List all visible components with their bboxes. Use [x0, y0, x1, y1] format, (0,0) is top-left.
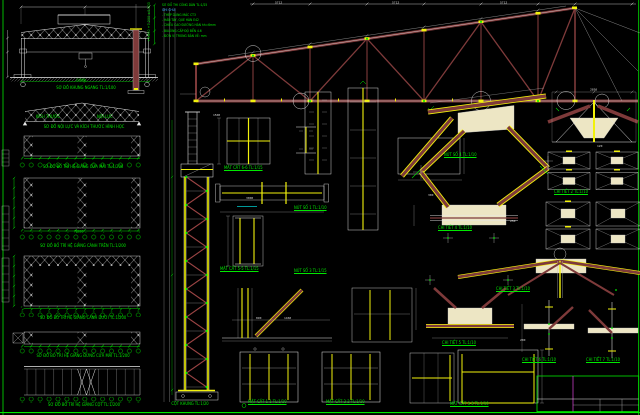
detail-mat-cat-5-5 — [226, 216, 263, 266]
label-chi-tiet-4: CHI TIẾT 4 TL:1/10 — [438, 226, 472, 231]
detail-chi-tiet-5 — [416, 275, 514, 338]
dim-text: 250 — [510, 219, 516, 223]
detail-nut-3-bracket — [222, 288, 332, 341]
detail-splice-plate-1 — [305, 92, 331, 174]
truss-gusset-plates — [194, 7, 578, 103]
detail-gable-apex — [548, 91, 638, 142]
detail-splice-plate-2 — [348, 81, 378, 230]
dim-text: 890 — [256, 316, 262, 320]
dim-text: 3000 — [246, 196, 253, 200]
title-khung-ngang: SƠ ĐỒ KHUNG NGANG TL:1/100 — [41, 86, 131, 91]
label-chi-tiet-6: CHI TIẾT 6 TL:1/10 — [522, 358, 556, 363]
title-block — [537, 376, 639, 412]
detail-gusset-plan-views — [546, 151, 640, 250]
detail-stiffened-box — [352, 288, 412, 342]
label-mat-cat-5-5: MẶT CẮT 5-5 TL:1/15 — [220, 267, 259, 272]
detail-mat-cat-6-6 — [217, 118, 316, 164]
dim-text: 1460 — [284, 316, 291, 320]
sublabel-noi-luc: NỘI LỰC — [97, 115, 113, 120]
dim-text: 1500 — [213, 113, 220, 117]
dim-text: 5712 — [500, 0, 507, 4]
label-chi-tiet-2: CHI TIẾT 2 TL:1/10 — [554, 190, 588, 195]
title-noi-luc: SƠ ĐỒ NỘI LỰC VÀ KÍCH THƯỚC HÌNH HỌC — [33, 125, 135, 130]
title-plan-dung-cua-mai: SƠ ĐỒ BỐ TRÍ HỆ GIẰNG ĐỨNG CỬA MÁI TL:1/… — [36, 354, 130, 359]
bracing-plan-dung-cua-mai — [13, 332, 146, 355]
dim-text: 78000 — [74, 230, 84, 234]
title-plan-canh-duoi: SƠ ĐỒ BỐ TRÍ HỆ GIẰNG CÁNH DƯỚI TL:1/200 — [36, 316, 130, 321]
cad-sheet[interactable]: 24000 78000 — [0, 0, 640, 415]
dim-text: 5712 — [275, 0, 282, 4]
dim-text: 120 — [597, 144, 603, 148]
label-chi-tiet-7: CHI TIẾT 7 TL:1/10 — [586, 358, 620, 363]
elevation-marks: +9.600 +7.200 ±0.000 — [147, 2, 151, 42]
detail-chi-tiet-6 — [522, 300, 574, 356]
detail-chi-tiet-7 — [588, 302, 638, 358]
label-chi-tiet-3: CHI TIẾT 3 TL:1/10 — [496, 287, 530, 292]
label-nut-4: NÚT SỐ 4 TL:1/10 — [444, 153, 477, 158]
label-mat-cat-2-2: MẶT CẮT 2-2 TL:1/10 — [326, 400, 365, 405]
title-plan-canh-tren: SƠ ĐỒ BỐ TRÍ HỆ GIẰNG CÁNH TRÊN TL:1/200 — [36, 244, 130, 249]
label-mat-cat-1-1: MẶT CẮT 1-1 TL:1/10 — [248, 400, 287, 405]
label-cot-khung: CỘT KHUNG TL:1/20 — [169, 402, 211, 407]
detail-base-plate-1 — [240, 348, 298, 408]
detail-chi-tiet-3-apex-node — [458, 248, 640, 298]
note-line-7: - ĐƠN VỊ TRONG BẢN VẼ: mm — [162, 33, 206, 38]
detail-nut-4 — [412, 88, 553, 243]
sublabel-kich-thuoc: KÍCH THƯỚC — [36, 115, 60, 120]
dim-text: 200 — [520, 338, 526, 342]
label-nut-3: NÚT SỐ 3 TL:1/15 — [294, 269, 327, 274]
detail-channel-section — [410, 353, 454, 403]
bracing-plan-cot — [20, 367, 145, 404]
label-nut-1: NÚT SỐ 1 TL:1/10 — [294, 206, 327, 211]
lattice-column-elevation — [171, 112, 218, 400]
label-chi-tiet-5: CHI TIẾT 5 TL:1/10 — [442, 341, 476, 346]
bracing-plan-canh-tren: 78000 — [13, 177, 146, 240]
label-mat-cat-6-6: MẶT CẮT 6-6 TL:1/15 — [224, 166, 263, 171]
dim-text: 24000 — [76, 78, 86, 82]
dim-text: 2850 — [590, 88, 597, 92]
dim-text: 5712 — [392, 0, 399, 4]
bracing-plan-cua-mai — [20, 136, 146, 168]
bracing-plan-canh-duoi — [13, 255, 146, 317]
title-plan-cot: SƠ ĐỒ BỐ TRÍ HỆ GIẰNG CỘT TL:1/200 — [38, 403, 131, 408]
dim-text: 300 — [428, 193, 434, 197]
title-plan-cua-mai: SƠ ĐỒ BỐ TRÍ HỆ GIẰNG CỬA MÁI TL:1/200 — [36, 165, 130, 170]
detail-base-plate-2 — [322, 352, 380, 402]
label-mat-cat-3-3: MẶT CẮT 3-3 TL:1/10 — [450, 402, 489, 407]
